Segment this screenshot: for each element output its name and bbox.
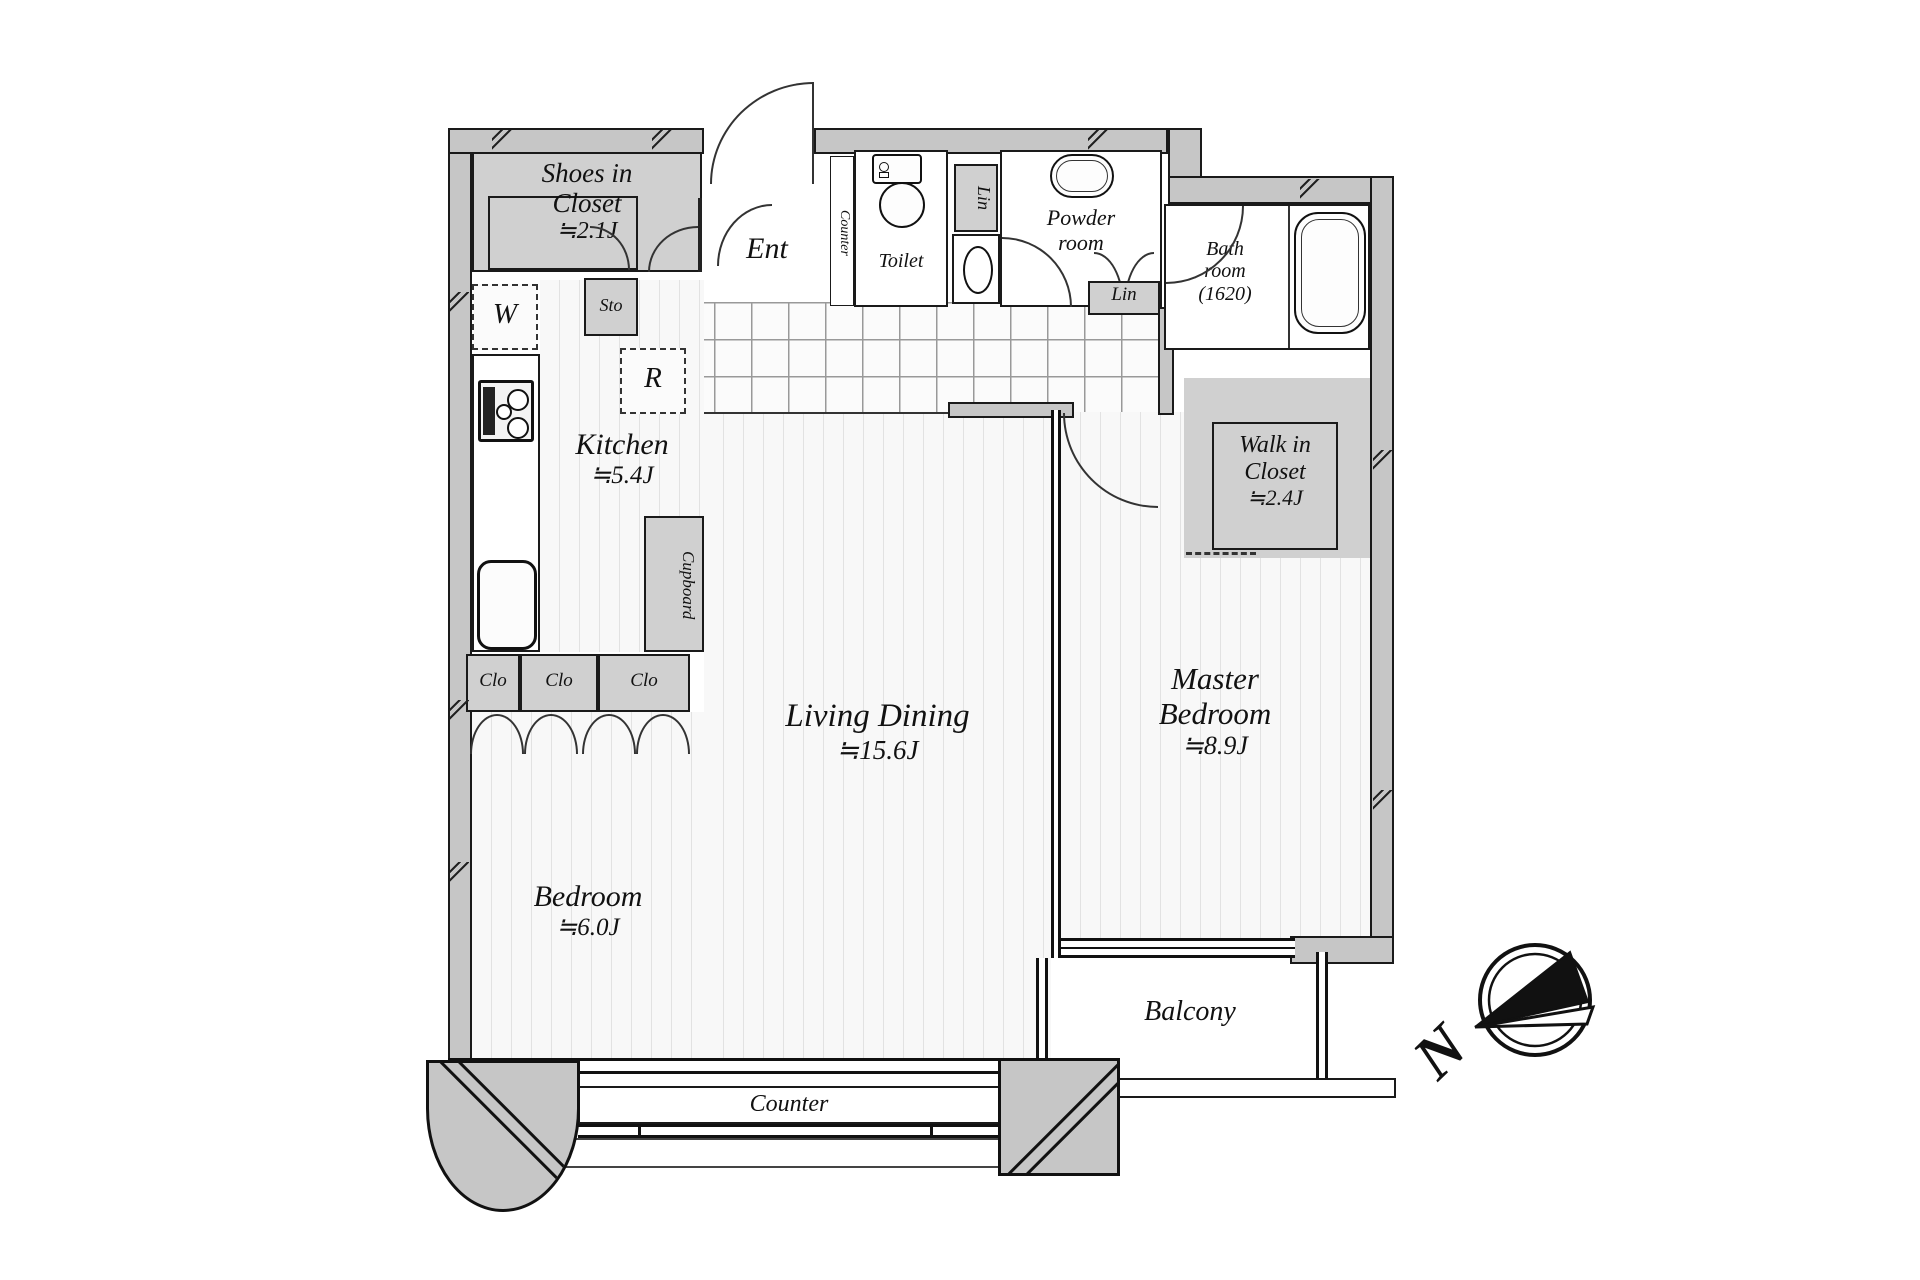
wall-hatch (1300, 179, 1334, 202)
ent-inner-door-arc (717, 204, 772, 266)
washbasin-box (952, 234, 1000, 304)
wall-left (448, 128, 472, 1080)
south-window-band (578, 1124, 1000, 1138)
toilet-tank-icon (872, 154, 922, 184)
wall-right (1370, 176, 1394, 964)
wall-hatch (492, 130, 522, 152)
compass-icon: N (1400, 930, 1660, 1140)
kitchen-sink-icon (477, 560, 537, 650)
master-south-window (1061, 938, 1295, 958)
wall-hatch (450, 700, 469, 740)
south-sill (556, 1138, 1022, 1168)
bathtub-icon (1294, 212, 1366, 334)
closet-2-label: Clo (520, 670, 598, 691)
closet-1-label: Clo (466, 670, 520, 691)
wall-hatch (450, 862, 469, 902)
wall-living-master (1051, 410, 1061, 958)
shoes-in-closet-label: Shoes in Closet ≒2.1J (472, 158, 702, 245)
toilet-label: Toilet (854, 250, 948, 272)
washer-label: W (472, 298, 538, 330)
storage-label: Sto (584, 295, 638, 315)
hall-counter-label: Counter (832, 166, 852, 300)
entrance-door-arc (710, 82, 814, 184)
balcony-label: Balcony (1100, 996, 1280, 1027)
compass-north-label: N (1400, 1011, 1482, 1093)
linen-lower-label: Lin (1088, 284, 1160, 305)
kitchen-corridor-door-leaf (698, 198, 702, 272)
wall-hatch (450, 292, 469, 332)
wall-hatch (1088, 130, 1118, 152)
bedroom-label: Bedroom ≒6.0J (472, 880, 704, 942)
balcony-right-divider (1316, 952, 1328, 1080)
wall-hatch (1373, 450, 1392, 490)
pillar-left (426, 1060, 580, 1212)
wall-hatch (652, 130, 682, 152)
pillar-mid (998, 1058, 1120, 1176)
refrigerator-label: R (620, 362, 686, 394)
cupboard-label: Cupboard (650, 524, 698, 646)
walk-in-closet-label: Walk in Closet ≒2.4J (1212, 432, 1338, 510)
kitchen-label: Kitchen ≒5.4J (540, 428, 704, 490)
wall-master-south-stub (1290, 936, 1394, 964)
walk-in-closet-folding-door (1186, 552, 1256, 555)
counter-label: Counter (578, 1091, 1000, 1118)
closet-3-label: Clo (598, 670, 690, 691)
stove-icon (478, 380, 534, 442)
powder-basin-icon (1050, 154, 1114, 198)
hallway-tile-floor (640, 302, 1162, 412)
master-bedroom-label: Master Bedroom ≒8.9J (1095, 662, 1335, 761)
floor-plan-canvas: Shoes in Closet ≒2.1J Sto Ent Counter To… (0, 0, 1920, 1280)
toilet-bowl-icon (879, 182, 925, 228)
linen-upper-label: Lin (958, 170, 994, 226)
wall-hatch (1373, 790, 1392, 830)
wall-topright (1168, 176, 1394, 204)
balcony-bottom-rail (1096, 1078, 1396, 1098)
living-dining-label: Living Dining ≒15.6J (704, 698, 1051, 765)
